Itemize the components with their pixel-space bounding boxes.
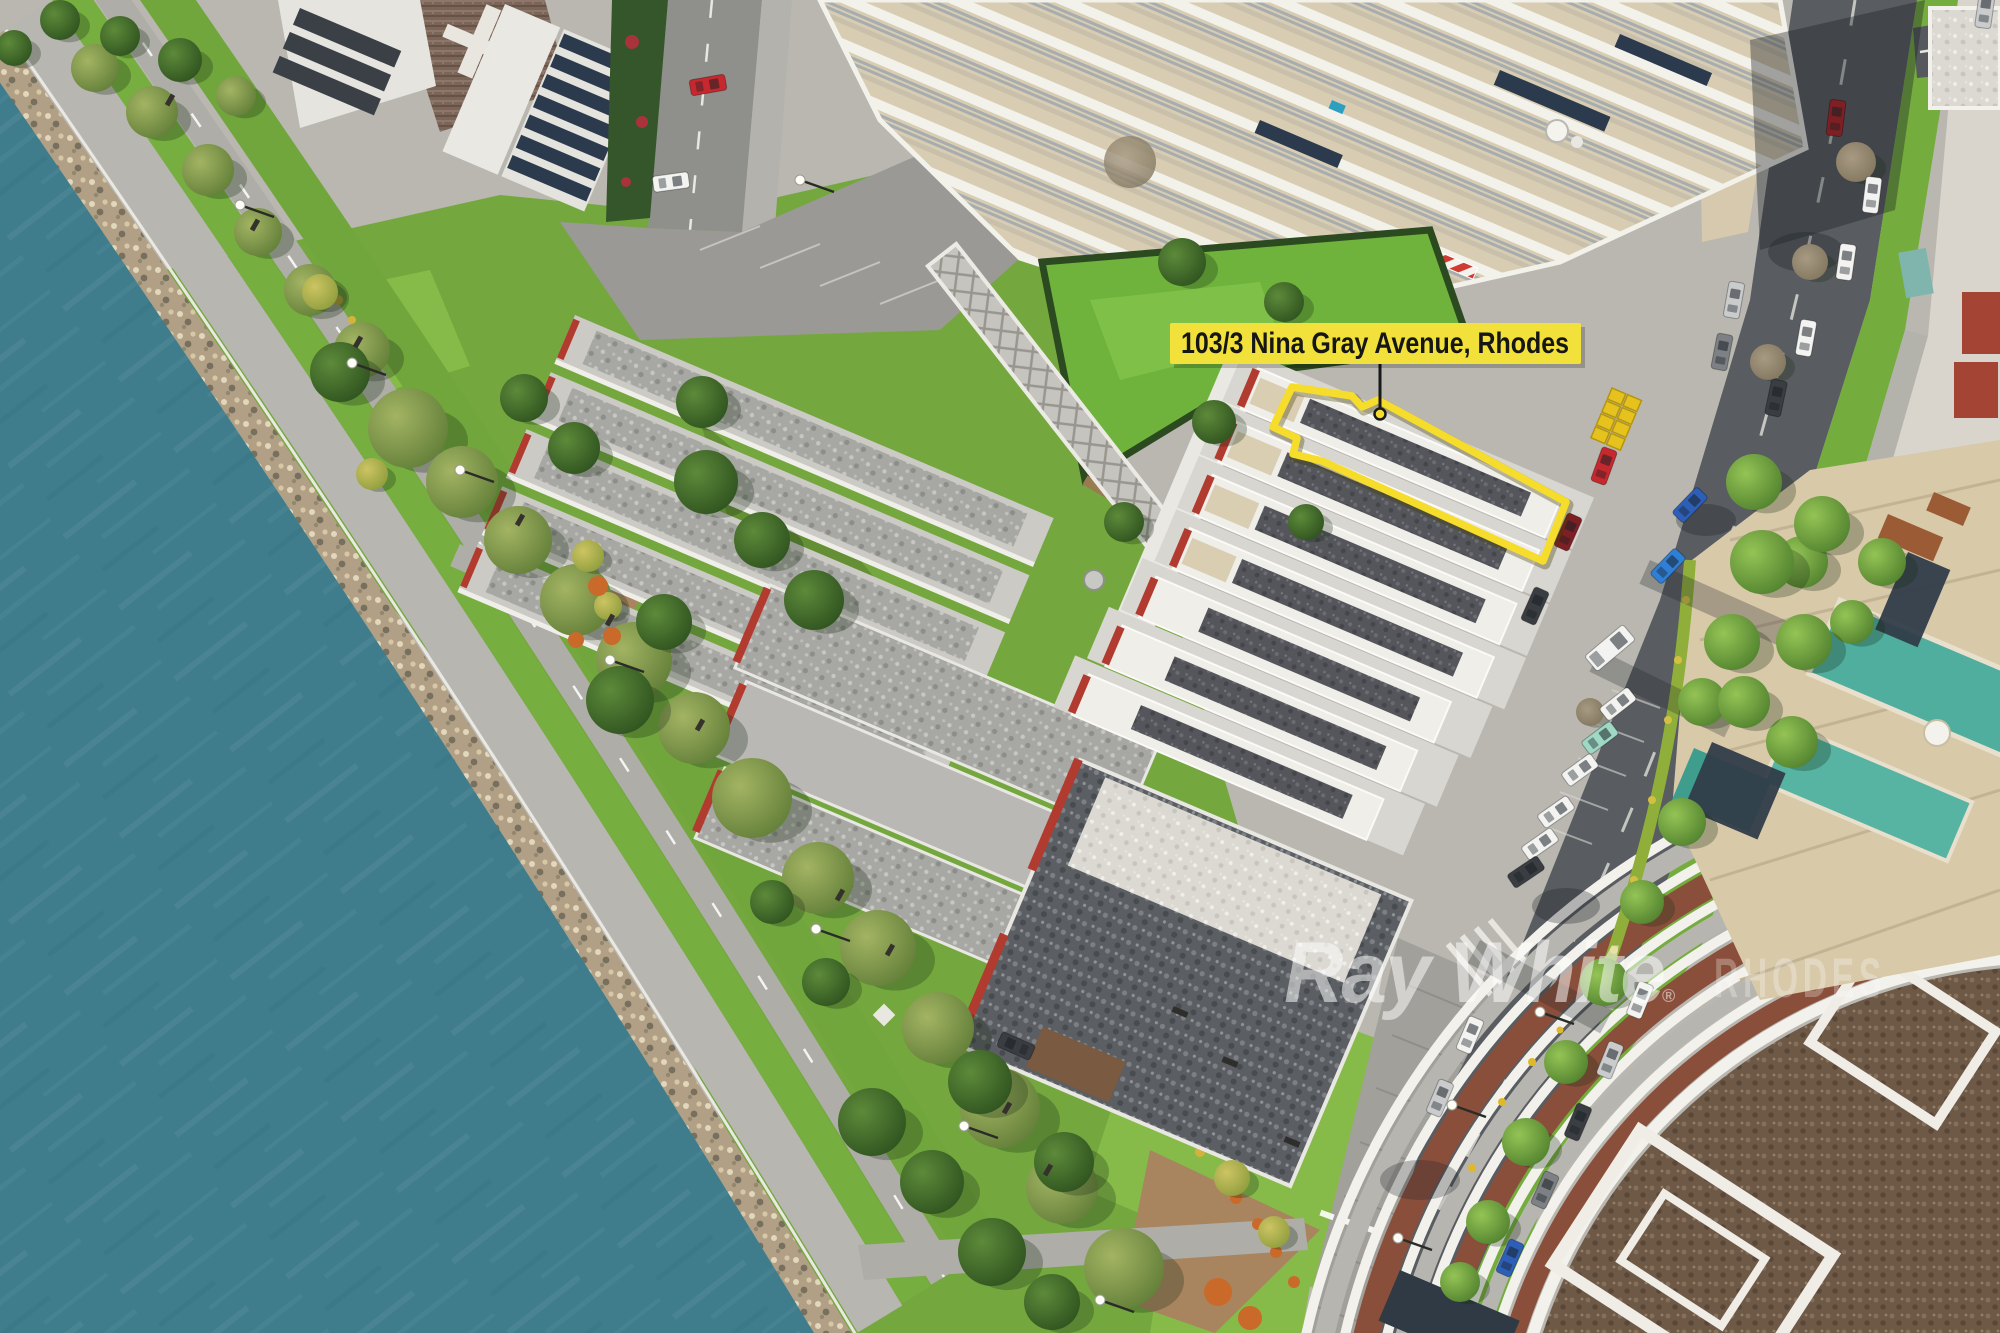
lamp [455, 465, 465, 475]
tree [126, 86, 178, 138]
tree [1792, 244, 1828, 280]
shrub [588, 576, 608, 596]
shrub [603, 627, 621, 645]
tree [500, 374, 548, 422]
tree [1750, 344, 1786, 380]
tree [234, 208, 282, 256]
lamp [235, 200, 245, 210]
shrub [1238, 1306, 1262, 1330]
lamp [347, 358, 357, 368]
tree [734, 512, 790, 568]
tree [1544, 1040, 1588, 1084]
tree [1704, 614, 1760, 670]
satellite-dish [1084, 570, 1104, 590]
lamp [811, 924, 821, 934]
tree [1776, 614, 1832, 670]
brick-roof [1962, 292, 2000, 354]
address-label-text: 103/3 Nina Gray Avenue, Rhodes [1181, 327, 1569, 360]
shrub [568, 632, 584, 648]
tree [712, 758, 792, 838]
tree [216, 76, 256, 116]
satellite-dish [1571, 136, 1583, 148]
tree [900, 1150, 964, 1214]
tree [674, 450, 738, 514]
tree [636, 594, 692, 650]
lamp [795, 175, 805, 185]
tree [1726, 454, 1782, 510]
tree [1104, 502, 1144, 542]
tree [1794, 496, 1850, 552]
brick-roof [1954, 362, 1998, 418]
tree [1858, 538, 1906, 586]
bare-tree [1104, 136, 1156, 188]
tree [484, 506, 552, 574]
tree [100, 16, 140, 56]
tree [1466, 1200, 1510, 1244]
tree [594, 592, 622, 620]
tree [958, 1218, 1026, 1286]
lamp [1393, 1233, 1403, 1243]
tree [40, 0, 80, 40]
tree [1718, 676, 1770, 728]
tree [1288, 504, 1324, 540]
tree [1024, 1274, 1080, 1330]
tree [1214, 1160, 1250, 1196]
tree [1502, 1118, 1550, 1166]
tree [1258, 1216, 1290, 1248]
watermark-office: RHODES [1714, 946, 1886, 1009]
tree [586, 666, 654, 734]
tree [1158, 238, 1206, 286]
tree [1034, 1132, 1094, 1192]
tree [426, 446, 498, 518]
tree [1264, 282, 1304, 322]
aerial-photo: 103/3 Nina Gray Avenue, Rhodes Ray White… [0, 0, 2000, 1333]
tree [902, 992, 974, 1064]
tree [676, 376, 728, 428]
tree [572, 540, 604, 572]
lamp [959, 1121, 969, 1131]
tree [838, 1088, 906, 1156]
watermark-brand: Ray White [1284, 925, 1664, 1021]
tree [182, 144, 234, 196]
tree [548, 422, 600, 474]
aerial-scene: 103/3 Nina Gray Avenue, Rhodes Ray White… [0, 0, 2000, 1333]
tree [1192, 400, 1236, 444]
tree [784, 570, 844, 630]
tree [1084, 1228, 1164, 1308]
lamp [1447, 1100, 1457, 1110]
tree [1620, 880, 1664, 924]
satellite-dish [1546, 120, 1568, 142]
tree [158, 38, 202, 82]
tree [1658, 798, 1706, 846]
tree [1836, 142, 1876, 182]
tree [356, 458, 388, 490]
tree [1730, 530, 1794, 594]
tree [368, 388, 448, 468]
leader-dot [1375, 409, 1386, 420]
shrub [1204, 1278, 1232, 1306]
tree [1440, 1262, 1480, 1302]
tree [1576, 698, 1604, 726]
tree [310, 342, 370, 402]
watermark-registered: ® [1662, 986, 1675, 1006]
lamp [605, 655, 615, 665]
tree [948, 1050, 1012, 1114]
tree [302, 274, 338, 310]
umbrella [1924, 720, 1950, 746]
tree [750, 880, 794, 924]
tree [802, 958, 850, 1006]
lamp [1095, 1295, 1105, 1305]
